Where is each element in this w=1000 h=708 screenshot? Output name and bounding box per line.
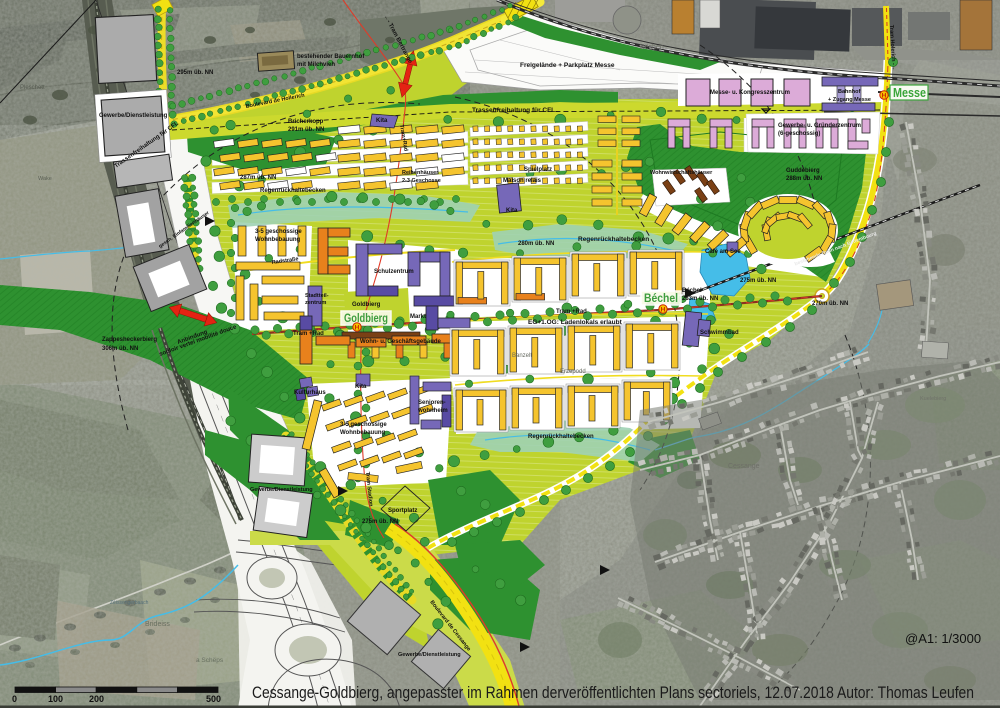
svg-text:Béchel: Béchel	[644, 293, 678, 305]
svg-text:Zéissengerbaach: Zéissengerbaach	[110, 600, 149, 606]
svg-text:Gewerbe/Dienstleistung: Gewerbe/Dienstleistung	[99, 113, 168, 119]
svg-text:306m üb. NN: 306m üb. NN	[102, 346, 138, 352]
svg-text:a Schëps: a Schëps	[196, 657, 224, 664]
svg-text:Freigelände + Parkplatz Messe: Freigelände + Parkplatz Messe	[520, 62, 615, 69]
svg-text:2-3 Geschosse: 2-3 Geschosse	[402, 178, 441, 184]
svg-text:Goldbierg: Goldbierg	[352, 302, 381, 308]
svg-text:Café am See: Café am See	[705, 249, 741, 255]
svg-text:275m üb. NN: 275m üb. NN	[740, 278, 776, 284]
svg-text:zentrum: zentrum	[305, 300, 327, 306]
svg-text:Schulzentrum: Schulzentrum	[374, 269, 414, 275]
svg-text:Kita: Kita	[355, 384, 367, 390]
svg-text:Erzepodd: Erzepodd	[560, 369, 586, 375]
svg-text:bestehender Bauernhof: bestehender Bauernhof	[297, 54, 365, 60]
svg-text:mit Milchvieh: mit Milchvieh	[297, 62, 335, 68]
svg-text:287m üb. NN: 287m üb. NN	[240, 175, 276, 181]
svg-text:Banzelt: Banzelt	[512, 353, 532, 359]
svg-text:288m üb. NN: 288m üb. NN	[786, 176, 822, 182]
svg-text:Spielplatz: Spielplatz	[524, 167, 552, 173]
svg-text:Messe- u. Kongresszentrum: Messe- u. Kongresszentrum	[710, 90, 790, 96]
svg-text:283m üb. NN: 283m üb. NN	[682, 296, 718, 302]
svg-text:Senioren-: Senioren-	[418, 400, 446, 406]
svg-text:H: H	[661, 306, 666, 313]
svg-text:270m üb. NN: 270m üb. NN	[812, 301, 848, 307]
svg-text:Bricherkopp: Bricherkopp	[288, 119, 324, 125]
svg-text:Wohnbebauung: Wohnbebauung	[255, 237, 301, 243]
svg-text:291m üb. NN: 291m üb. NN	[288, 127, 324, 133]
svg-text:Kita: Kita	[376, 118, 388, 124]
svg-text:Guddebierg: Guddebierg	[786, 168, 820, 174]
svg-text:Zappesheckerbierg: Zappesheckerbierg	[102, 337, 157, 343]
svg-text:Schwimmbad: Schwimmbad	[700, 330, 739, 336]
svg-text:Trassenfreihaltung für CFL: Trassenfreihaltung für CFL	[472, 107, 555, 114]
svg-text:wohnheim: wohnheim	[417, 408, 448, 414]
svg-text:500: 500	[206, 694, 221, 704]
svg-text:Gewerbe- u. Gründerzentrum: Gewerbe- u. Gründerzentrum	[778, 123, 861, 129]
svg-text:Cessange: Cessange	[728, 463, 760, 470]
svg-text:@A1: 1/3000: @A1: 1/3000	[905, 631, 981, 646]
svg-text:Regenrückhaltebecken: Regenrückhaltebecken	[528, 434, 594, 440]
svg-text:Gewerbe/Dienstleistung: Gewerbe/Dienstleistung	[398, 652, 461, 658]
svg-text:280m üb. NN: 280m üb. NN	[518, 241, 554, 247]
svg-text:Regenrückhaltebecken: Regenrückhaltebecken	[260, 188, 326, 194]
svg-text:3-5 geschossige: 3-5 geschossige	[255, 229, 302, 235]
svg-text:Sportplatz: Sportplatz	[388, 508, 417, 514]
svg-text:Maison relais: Maison relais	[503, 178, 542, 184]
svg-text:+ Zugang Messe: + Zugang Messe	[828, 97, 871, 103]
svg-text:Markt: Markt	[410, 314, 426, 320]
svg-text:Kulturhaus: Kulturhaus	[294, 390, 326, 396]
svg-text:Kita: Kita	[506, 208, 518, 214]
svg-text:H: H	[882, 92, 887, 99]
svg-text:3-5 geschossige: 3-5 geschossige	[340, 422, 387, 428]
svg-text:Cessange-Goldbierg, angepasste: Cessange-Goldbierg, angepasster im Rahme…	[252, 684, 974, 702]
svg-text:Pleschett: Pleschett	[20, 85, 45, 91]
svg-text:Stadtteil-: Stadtteil-	[305, 293, 329, 299]
svg-text:-→: -→	[366, 516, 373, 524]
svg-text:Gewerbe/Dienstleistung: Gewerbe/Dienstleistung	[250, 487, 313, 493]
svg-text:295m üb. NN: 295m üb. NN	[177, 70, 213, 76]
svg-text:Kuelebierg: Kuelebierg	[920, 396, 946, 402]
svg-text:Wohnwirtschaftshäuser: Wohnwirtschaftshäuser	[650, 170, 713, 176]
svg-text:H: H	[355, 324, 360, 331]
svg-text:Regenrückhaltebecken: Regenrückhaltebecken	[578, 236, 649, 243]
svg-text:Bëchen: Bëchen	[640, 44, 664, 51]
svg-text:Tram +Rad: Tram +Rad	[293, 331, 324, 337]
svg-text:0: 0	[12, 694, 17, 704]
svg-text:Bahnhof: Bahnhof	[838, 89, 860, 95]
svg-text:Brideiss: Brideiss	[145, 621, 170, 628]
svg-text:Reihenhäuser: Reihenhäuser	[402, 170, 439, 176]
svg-text:EG+1.OG: Ladenlokals erlaubt: EG+1.OG: Ladenlokals erlaubt	[528, 319, 623, 326]
svg-text:Wohnbebauung: Wohnbebauung	[340, 430, 386, 436]
svg-text:Wohn- u. Geschäftsgebäude: Wohn- u. Geschäftsgebäude	[360, 339, 442, 345]
svg-text:Goldbierg: Goldbierg	[344, 311, 388, 325]
svg-text:(6-geschossig): (6-geschossig)	[778, 131, 820, 137]
svg-text:Wake: Wake	[38, 176, 52, 182]
svg-text:Messe: Messe	[893, 86, 926, 100]
svg-text:Tram +Rad: Tram +Rad	[556, 309, 587, 315]
svg-text:200: 200	[89, 694, 104, 704]
svg-text:100: 100	[48, 694, 63, 704]
